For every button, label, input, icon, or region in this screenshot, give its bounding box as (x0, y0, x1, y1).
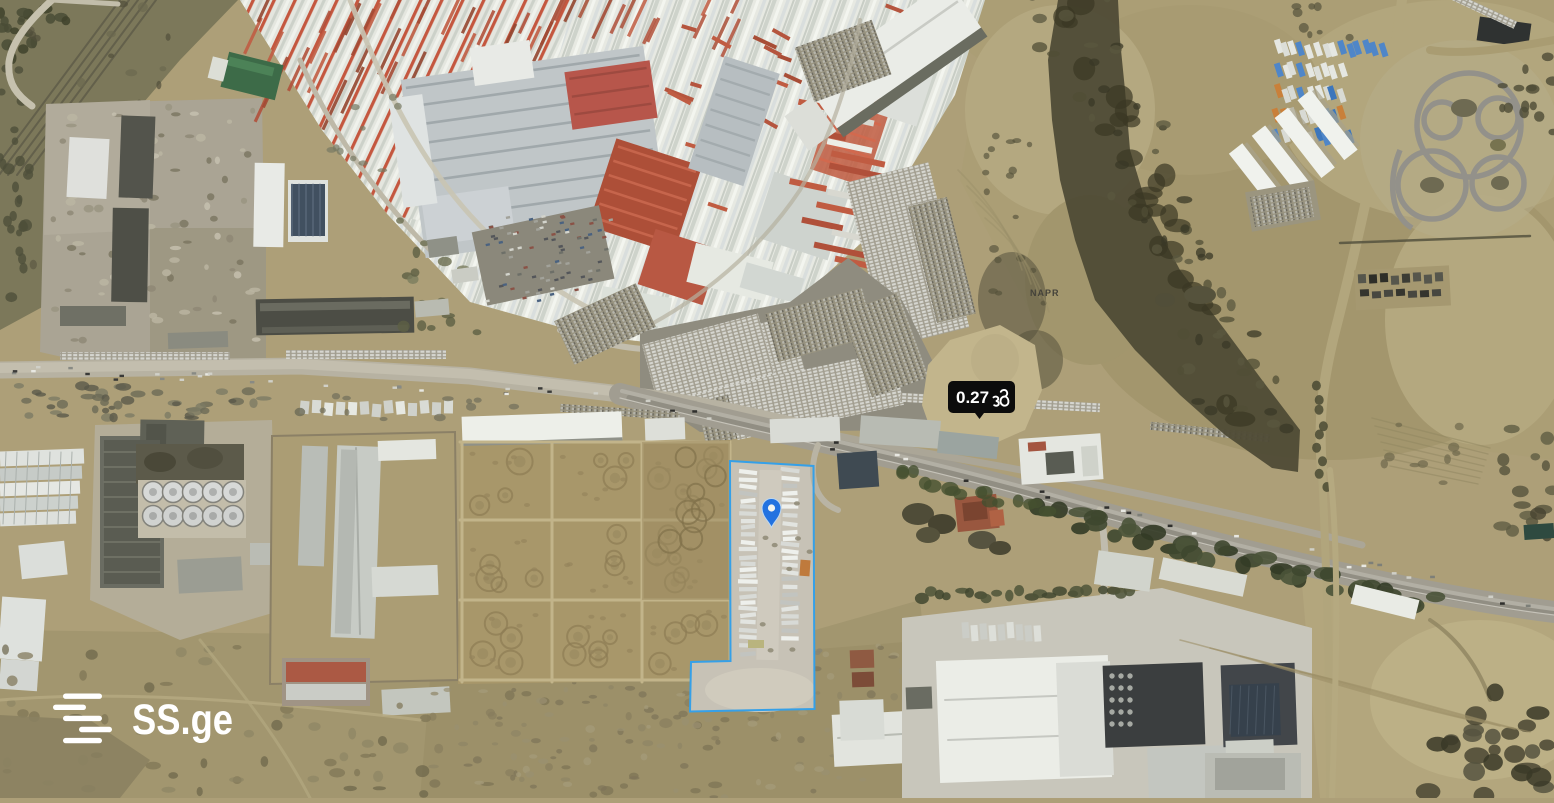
svg-text:NAPR: NAPR (1030, 288, 1060, 298)
svg-text:SS.ge: SS.ge (132, 696, 233, 744)
svg-text:0.27: 0.27 (956, 388, 989, 407)
